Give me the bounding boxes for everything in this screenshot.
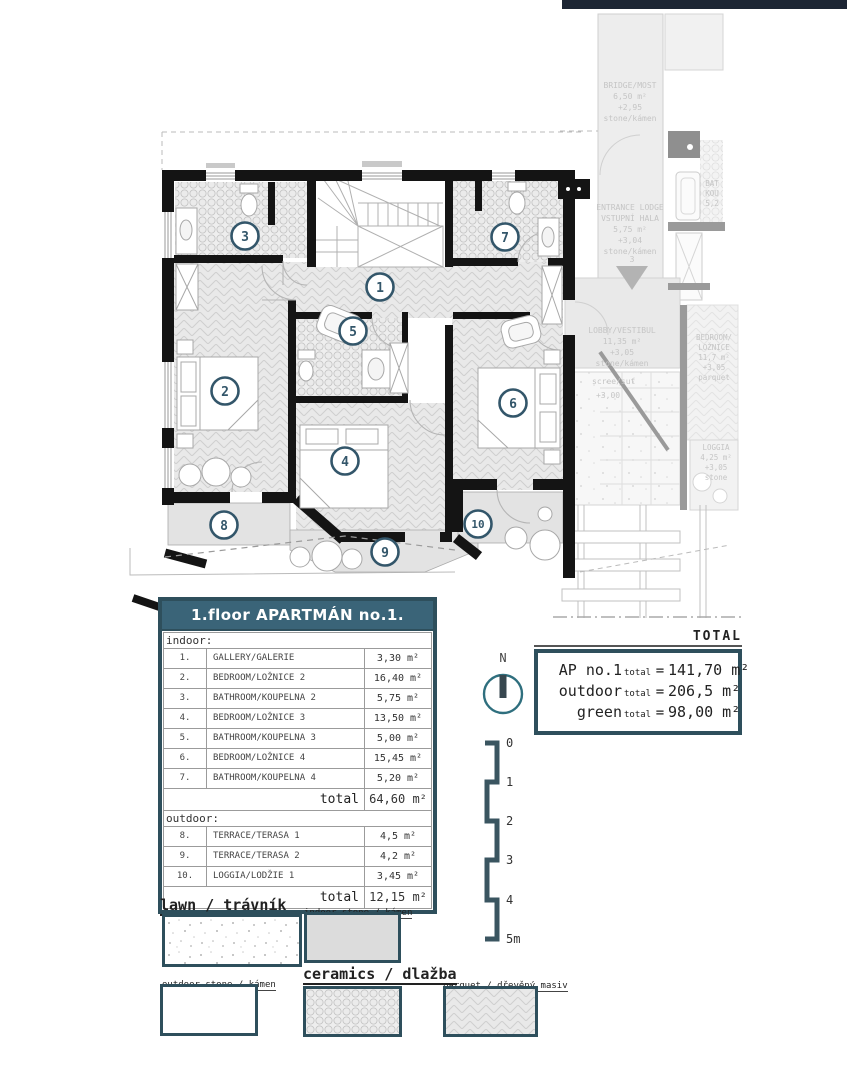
table-row: 6.BEDROOM/LOŽNICE 415,45 m²: [164, 749, 431, 769]
exterior-stairs: [562, 505, 706, 618]
room-badge-8: 8: [211, 512, 238, 539]
room-badge-6: 6: [500, 390, 527, 417]
svg-text:parquet: parquet: [698, 373, 730, 382]
outdoor-section-label: outdoor:: [164, 811, 431, 827]
scale-bar-line: [485, 743, 497, 939]
room-badge-1: 1: [367, 274, 394, 301]
svg-text:11,35 m²: 11,35 m²: [603, 337, 642, 346]
context-faded-plan: BRIDGE/MOST 6,50 m² +2,95 stone/kámen EN…: [553, 0, 847, 618]
indoor-total-row: total64,60 m²: [164, 789, 431, 811]
svg-text:scree/suť: scree/suť: [592, 377, 636, 386]
svg-text:+3,05: +3,05: [703, 363, 726, 372]
svg-text:LOGGIA: LOGGIA: [702, 443, 730, 452]
floor-plan-drawing: BRIDGE/MOST 6,50 m² +2,95 stone/kámen EN…: [0, 0, 847, 660]
svg-text:5,75 m²: 5,75 m²: [613, 225, 647, 234]
svg-text:4: 4: [506, 893, 513, 907]
svg-text:7: 7: [501, 231, 509, 246]
svg-text:KOU: KOU: [705, 189, 719, 198]
svg-text:8: 8: [220, 519, 228, 534]
room-badge-2: 2: [212, 378, 239, 405]
svg-text:+3,00: +3,00: [596, 391, 620, 400]
totals-heading: TOTAL: [534, 629, 742, 647]
staircase: [316, 170, 445, 267]
legend-ceramics-swatch: [303, 986, 402, 1037]
legend-parquet-swatch: [443, 986, 538, 1037]
table-row: 3.BATHROOM/KOUPELNA 25,75 m²: [164, 689, 431, 709]
svg-text:stone: stone: [705, 473, 728, 482]
svg-text:4,25 m²: 4,25 m²: [700, 453, 732, 462]
totals-summary: TOTAL AP no.1 total = 141,70 m² outdoor …: [534, 629, 742, 735]
room-badge-10: 10: [465, 511, 492, 538]
svg-text:BRIDGE/MOST: BRIDGE/MOST: [604, 81, 657, 90]
legend-ceramics-label: ceramics / dlažba: [303, 964, 457, 983]
svg-text:11,7 m²: 11,7 m²: [698, 353, 730, 362]
table-row: 5.BATHROOM/KOUPELNA 35,00 m²: [164, 729, 431, 749]
legend-lawn-swatch: [162, 914, 302, 967]
svg-text:VSTUPNÍ HALA: VSTUPNÍ HALA: [601, 212, 659, 223]
floor-plan-sheet: { "plan": { "rooms": [ {"n":"1"},{"n":"2…: [0, 0, 847, 1080]
table-row: 2.BEDROOM/LOŽNICE 216,40 m²: [164, 669, 431, 689]
svg-text:1: 1: [376, 281, 384, 296]
svg-text:3: 3: [630, 255, 635, 264]
svg-text:2: 2: [221, 385, 229, 400]
svg-text:5,2: 5,2: [705, 199, 719, 208]
svg-text:ENTRANCE LODGE: ENTRANCE LODGE: [596, 203, 664, 212]
svg-text:5: 5: [349, 325, 357, 340]
table-row: 7.BATHROOM/KOUPELNA 45,20 m²: [164, 769, 431, 789]
svg-text:BEDROOM/: BEDROOM/: [696, 333, 732, 342]
svg-text:0: 0: [506, 736, 513, 750]
svg-text:10: 10: [471, 518, 484, 531]
svg-text:4: 4: [341, 455, 349, 470]
table-row: 4.BEDROOM/LOŽNICE 313,50 m²: [164, 709, 431, 729]
svg-text:6,50 m²: 6,50 m²: [613, 92, 647, 101]
svg-text:6: 6: [509, 397, 517, 412]
svg-text:BAT: BAT: [705, 179, 719, 188]
svg-text:3: 3: [241, 230, 249, 245]
room-badge-9: 9: [372, 539, 399, 566]
area-table-title: 1.floor APARTMÁN no.1.: [162, 601, 433, 631]
svg-text:+2,95: +2,95: [618, 103, 642, 112]
legend-indoor-stone-swatch: [304, 912, 401, 963]
legend-outdoor-stone-swatch: [160, 984, 258, 1036]
svg-text:stone/kámen: stone/kámen: [596, 359, 649, 368]
svg-text:+3,04: +3,04: [618, 236, 642, 245]
top-navy-bar: [562, 0, 847, 9]
room-badge-5: 5: [340, 318, 367, 345]
svg-text:stone/kámen: stone/kámen: [604, 114, 657, 123]
svg-text:2: 2: [506, 814, 513, 828]
area-table: 1.floor APARTMÁN no.1. indoor: 1.GALLERY…: [158, 597, 437, 914]
entrance-door: [558, 179, 590, 199]
totals-box: AP no.1 total = 141,70 m² outdoor total …: [534, 649, 742, 735]
indoor-section-label: indoor:: [164, 633, 431, 649]
north-label: N: [499, 651, 506, 665]
total-row-outdoor: outdoor total = 206,5 m²: [546, 682, 730, 700]
svg-text:5m: 5m: [506, 932, 520, 946]
svg-text:1: 1: [506, 775, 513, 789]
svg-text:9: 9: [381, 546, 389, 561]
scale-bar-ticks: 0 1 2 3 4 5m: [506, 736, 520, 946]
room-badge-7: 7: [492, 224, 519, 251]
room-badge-4: 4: [332, 448, 359, 475]
svg-text:+3,05: +3,05: [610, 348, 634, 357]
room-badge-3: 3: [232, 223, 259, 250]
svg-text:3: 3: [506, 853, 513, 867]
svg-text:+3,05: +3,05: [705, 463, 728, 472]
total-row-apartment: AP no.1 total = 141,70 m²: [546, 661, 730, 679]
table-row: 1.GALLERY/GALERIE3,30 m²: [164, 649, 431, 669]
table-row: 9.TERRACE/TERASA 24,2 m²: [164, 847, 431, 867]
table-row: 10.LOGGIA/LODŽIE 13,45 m²: [164, 867, 431, 887]
north-compass: N: [478, 648, 528, 726]
total-row-green: green total = 98,00 m²: [546, 703, 730, 721]
svg-text:LOŽNICE: LOŽNICE: [698, 343, 730, 352]
legend-lawn-label: lawn / trávník: [160, 895, 286, 914]
scale-bar: 0 1 2 3 4 5m: [475, 733, 539, 955]
table-row: 8.TERRACE/TERASA 14,5 m²: [164, 827, 431, 847]
svg-text:LOBBY/VESTIBUL: LOBBY/VESTIBUL: [588, 326, 656, 335]
